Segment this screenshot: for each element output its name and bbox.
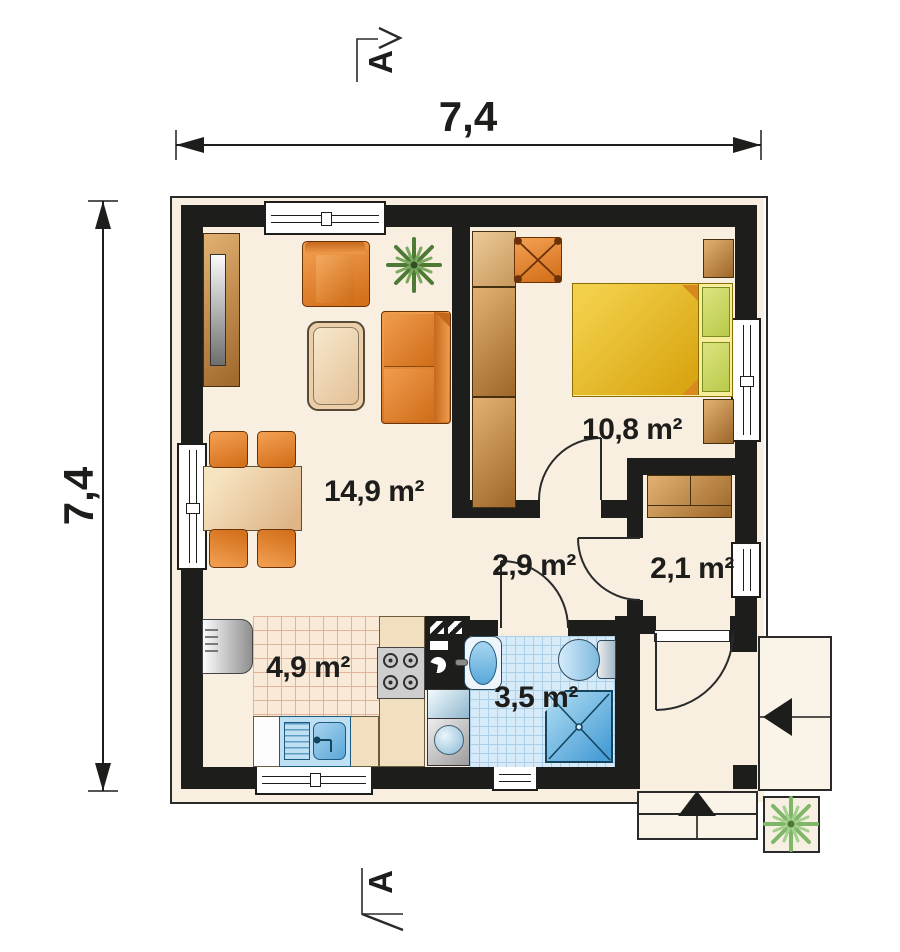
bedroom-cabinet-top — [472, 231, 516, 287]
bed-blanket — [573, 284, 699, 395]
coffee-table-top — [313, 327, 359, 405]
dining-chair — [257, 529, 296, 568]
window-mullion — [310, 773, 321, 787]
armchair-back — [305, 242, 365, 254]
bedroom-wardrobe — [472, 397, 516, 508]
dining-chair — [209, 529, 248, 568]
entry-side-platform — [758, 636, 832, 791]
bed-pillow — [702, 342, 730, 392]
window-glazing — [499, 774, 531, 782]
duct-bar-icon — [430, 641, 448, 650]
bed-frame — [572, 283, 733, 397]
sink-basin — [313, 722, 346, 760]
vent-hatch-icon — [430, 621, 444, 634]
window-mullion — [321, 212, 332, 226]
window-kitchen-bottom — [255, 763, 373, 795]
planter-box — [763, 796, 820, 853]
sofa — [381, 311, 451, 424]
sofa-cushion — [384, 314, 434, 367]
vent-hatch-icon — [448, 621, 462, 634]
wall-bath-top-left — [468, 620, 498, 636]
nightstand — [703, 399, 734, 444]
washing-machine — [427, 718, 470, 766]
wall-living-bedroom — [452, 227, 470, 518]
wardrobe-cabinet — [647, 475, 732, 518]
room-area-bathroom: 3,5 m² — [494, 681, 578, 715]
wall-bedroom-wardrobe — [627, 458, 735, 475]
wall-bath-top-right — [568, 620, 615, 636]
kitchen-sink — [279, 716, 351, 767]
sofa-back — [434, 312, 449, 422]
section-letter-bottom: A — [362, 870, 400, 894]
washer-drum-icon — [434, 725, 464, 755]
room-area-bedroom: 10,8 m² — [582, 413, 682, 447]
section-letter-top: A — [362, 50, 400, 74]
contour-left — [170, 196, 172, 804]
dimension-height-label: 7,4 — [55, 467, 103, 525]
washbasin-bowl — [469, 641, 497, 685]
wall-porch-left — [615, 616, 640, 789]
room-area-hall: 2,9 m² — [492, 549, 576, 583]
contour-right — [766, 196, 768, 638]
entry-step-lower — [637, 813, 758, 840]
armchair-seat — [316, 255, 354, 303]
dining-chair — [257, 431, 296, 468]
washbasin-faucet — [455, 659, 468, 666]
window-bathroom-bottom — [492, 763, 538, 791]
kitchen-counter-white — [253, 716, 281, 767]
dining-table — [203, 466, 302, 531]
entry-step-upper — [637, 791, 758, 815]
tv-cabinet — [203, 233, 240, 387]
coffee-table — [307, 321, 365, 411]
room-area-wardrobe: 2,1 m² — [650, 552, 734, 586]
burner-icon — [383, 653, 398, 668]
room-area-living: 14,9 m² — [324, 475, 424, 509]
room-area-kitchen: 4,9 m² — [266, 651, 350, 685]
duct-circle-icon — [430, 657, 446, 673]
entry-threshold — [654, 630, 730, 642]
armchair — [302, 241, 370, 307]
toilet-bowl — [558, 639, 600, 681]
burner-icon — [403, 653, 418, 668]
nightstand — [703, 239, 734, 278]
window-mullion — [740, 376, 754, 387]
window-wardrobe-right — [731, 542, 761, 598]
wall-wardrobe-stub-bottom — [627, 600, 643, 620]
sink-drainer — [284, 722, 310, 760]
sofa-cushion — [384, 369, 434, 421]
wall-entry-stub-right — [730, 616, 757, 652]
wall-exterior-bottom — [181, 767, 640, 789]
tv-screen — [210, 254, 226, 366]
bedroom-wardrobe — [472, 287, 516, 397]
bedroom-chair — [514, 237, 562, 283]
burner-icon — [403, 675, 418, 690]
cabinet-divider — [690, 476, 692, 505]
wall-bedroom-hall-stub — [601, 500, 627, 518]
dimension-width-label: 7,4 — [439, 93, 497, 141]
fridge — [202, 619, 253, 674]
wall-corner-pillar — [733, 765, 757, 789]
window-glazing — [743, 549, 751, 591]
stove — [377, 647, 425, 699]
dining-chair — [209, 431, 248, 468]
floor-plan-canvas: 14,9 m² 10,8 m² 2,9 m² 2,1 m² 4,9 m² 3,5… — [0, 0, 900, 952]
window-living-top — [264, 201, 386, 235]
window-bedroom-right — [731, 318, 761, 442]
window-mullion — [186, 503, 200, 514]
contour-bottom — [170, 802, 644, 804]
cabinet-divider — [648, 505, 731, 507]
bed-pillow — [702, 287, 730, 337]
contour-top — [170, 196, 768, 198]
burner-icon — [383, 675, 398, 690]
water-heater — [427, 689, 470, 719]
